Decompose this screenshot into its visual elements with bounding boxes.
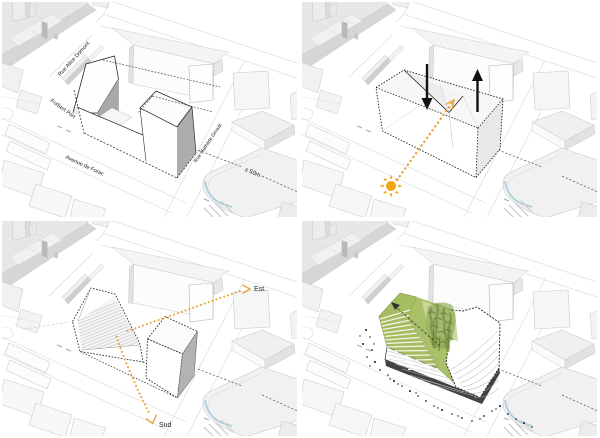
svg-text:Sud: Sud [159, 422, 172, 429]
svg-text:Est.: Est. [254, 286, 266, 293]
